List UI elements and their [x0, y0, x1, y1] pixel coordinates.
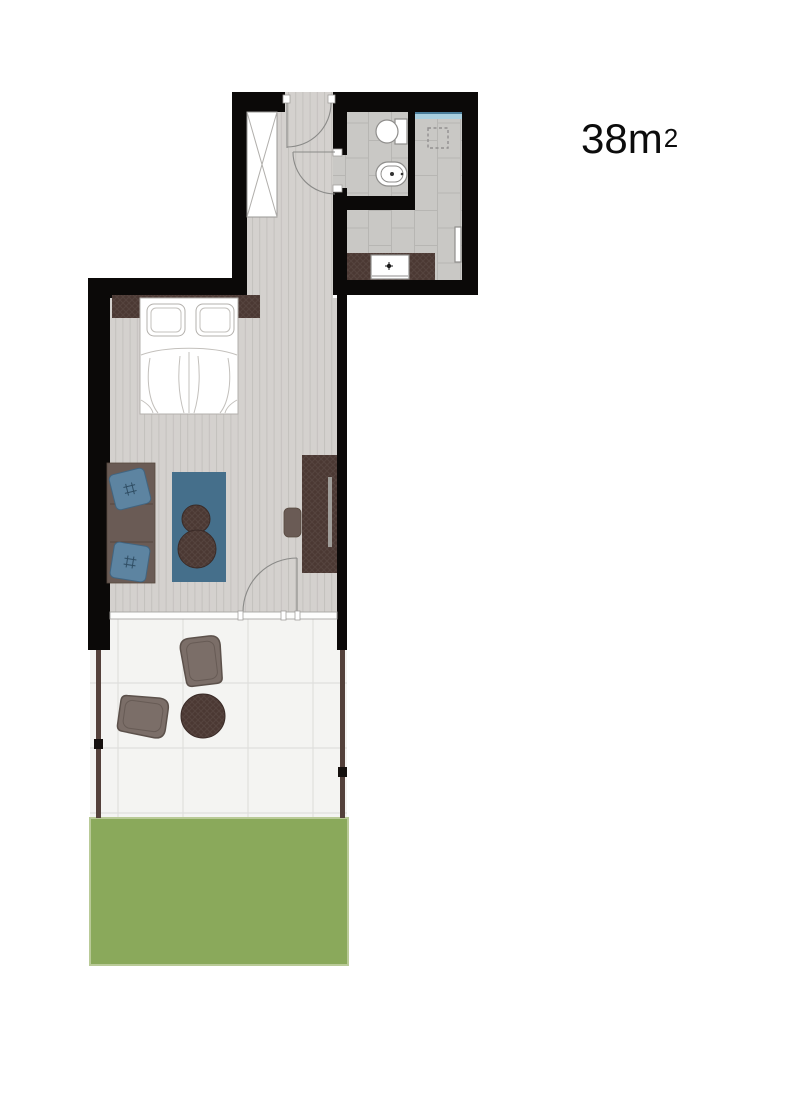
toilet-bowl — [376, 120, 398, 143]
area-value: 38m — [581, 115, 663, 162]
wall-main-right — [337, 295, 347, 650]
floor-plan-page: 38m2 — [0, 0, 786, 1120]
entrance-hall — [247, 112, 277, 217]
terrace-table — [181, 694, 225, 738]
bed-pillow-right — [196, 304, 234, 336]
lounge-chair-1 — [179, 635, 225, 688]
floor-plan-drawing — [0, 0, 786, 1120]
post-knob-left — [94, 739, 103, 749]
bath-door-jamb-bottom — [333, 185, 342, 192]
sofa-cushion-bottom — [109, 541, 150, 582]
entry-threshold-floor — [285, 92, 333, 114]
entry-door-jamb-right — [328, 95, 335, 103]
glass-facade — [110, 611, 337, 620]
pouf-large — [178, 530, 216, 568]
toilet — [376, 119, 407, 144]
glass-jamb-3 — [295, 611, 300, 620]
wall-kitchen-right — [462, 92, 478, 295]
area-label: 38m2 — [581, 118, 678, 160]
sliding-glass-wall — [110, 612, 337, 619]
radiator — [455, 227, 461, 262]
lawn — [90, 818, 348, 965]
bidet — [376, 162, 407, 186]
tv — [328, 477, 332, 547]
glass-jamb-1 — [238, 611, 243, 620]
bidet-tap — [401, 173, 404, 176]
entry-door-jamb-left — [283, 95, 290, 103]
wall-bath-bottom — [333, 196, 415, 210]
post-knob-right — [338, 767, 347, 777]
garden — [90, 818, 348, 965]
glass-jamb-2 — [281, 611, 286, 620]
area-exponent: 2 — [664, 123, 678, 153]
bidet-drain — [390, 172, 394, 176]
wall-top-right — [333, 92, 478, 112]
stool — [284, 508, 301, 537]
bathroom-door-threshold — [333, 155, 347, 188]
wall-bath-divider-upper — [333, 112, 347, 155]
lounge-chair-2 — [116, 693, 169, 739]
bed-pillow-left — [147, 304, 185, 336]
wall-kitchen-bottom — [333, 280, 478, 295]
kitchen-window-frame — [415, 112, 462, 114]
wall-bath-right — [408, 112, 415, 210]
wall-entry-left — [232, 92, 247, 298]
pouf-small — [182, 505, 210, 533]
